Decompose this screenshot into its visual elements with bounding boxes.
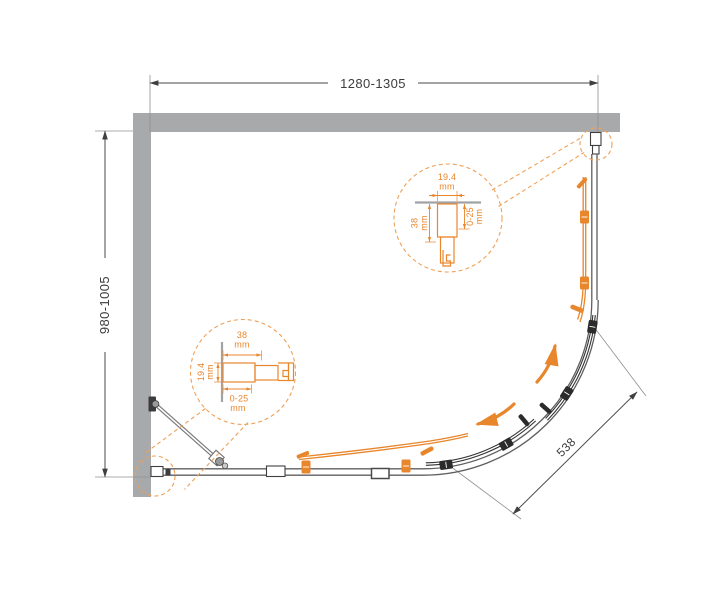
dimension-diagonal-label: 538 bbox=[554, 435, 579, 460]
detail-left-depth-dim: 38 mm bbox=[223, 330, 262, 361]
ghost-door-roller bbox=[302, 461, 311, 474]
detail-right-adjust-dim: 0-25 mm bbox=[459, 204, 485, 229]
wall-profile-top-right bbox=[591, 133, 602, 146]
floor-plan-drawing: 1280-1305 980-1005 538 bbox=[0, 0, 706, 600]
slide-direction-arrow-1 bbox=[537, 346, 555, 382]
door-2-handle bbox=[518, 413, 530, 427]
profile-section-right bbox=[438, 204, 458, 266]
profile-section-left bbox=[223, 363, 294, 382]
wall-profile-bottom-left bbox=[151, 467, 163, 477]
door-roller bbox=[439, 459, 453, 470]
dimension-left-label: 980-1005 bbox=[97, 276, 112, 334]
ghost-door-2-handle bbox=[420, 446, 434, 457]
door-1-handle bbox=[539, 402, 552, 415]
detail-circle-left: 38 mm 19.4 mm 0-25 mm bbox=[191, 320, 296, 425]
svg-text:0-25: 0-25 bbox=[230, 394, 249, 404]
dimension-diagonal: 538 bbox=[450, 323, 646, 519]
slide-direction-arrow-2 bbox=[478, 404, 514, 424]
svg-text:mm: mm bbox=[439, 182, 454, 192]
svg-text:38: 38 bbox=[410, 218, 420, 228]
detail-left-width-dim: 19.4 mm bbox=[196, 363, 221, 382]
ghost-door-roller bbox=[580, 277, 589, 290]
door-roller bbox=[587, 320, 598, 334]
dimension-top-label: 1280-1305 bbox=[340, 76, 406, 91]
svg-text:mm: mm bbox=[205, 364, 215, 379]
detail-right-depth-dim: 38 mm bbox=[410, 204, 437, 242]
ghost-door-1-handle bbox=[570, 304, 585, 313]
svg-text:mm: mm bbox=[230, 403, 245, 413]
bottom-rail bbox=[151, 466, 423, 479]
wall-top bbox=[133, 113, 620, 132]
ghost-door-2-end-cap bbox=[296, 451, 310, 460]
slide-direction-arrows bbox=[478, 346, 555, 424]
support-bar bbox=[149, 397, 228, 469]
door-bottom-guide bbox=[372, 469, 390, 479]
detail-callouts bbox=[135, 128, 612, 496]
ghost-door-roller bbox=[402, 460, 411, 473]
wall-left bbox=[133, 113, 151, 497]
ghost-door-roller bbox=[580, 211, 589, 224]
detail-left-adjust-dim: 0-25 mm bbox=[223, 385, 252, 414]
svg-text:mm: mm bbox=[474, 209, 484, 224]
enclosure-frame bbox=[151, 133, 601, 479]
rail-joint bbox=[267, 466, 286, 477]
detail-circle-right: 19.4 mm 38 mm 0-25 mm bbox=[394, 164, 502, 272]
fixed-panel-right bbox=[591, 133, 602, 301]
svg-text:mm: mm bbox=[234, 340, 249, 350]
svg-text:mm: mm bbox=[419, 215, 429, 230]
technical-drawing-svg: 1280-1305 980-1005 538 bbox=[0, 0, 706, 600]
svg-text:19.4: 19.4 bbox=[438, 172, 456, 182]
detail-right-width-dim: 19.4 mm bbox=[429, 172, 465, 201]
walls bbox=[133, 113, 620, 497]
svg-text:38: 38 bbox=[237, 330, 247, 340]
ghost-door-1 bbox=[570, 177, 589, 322]
